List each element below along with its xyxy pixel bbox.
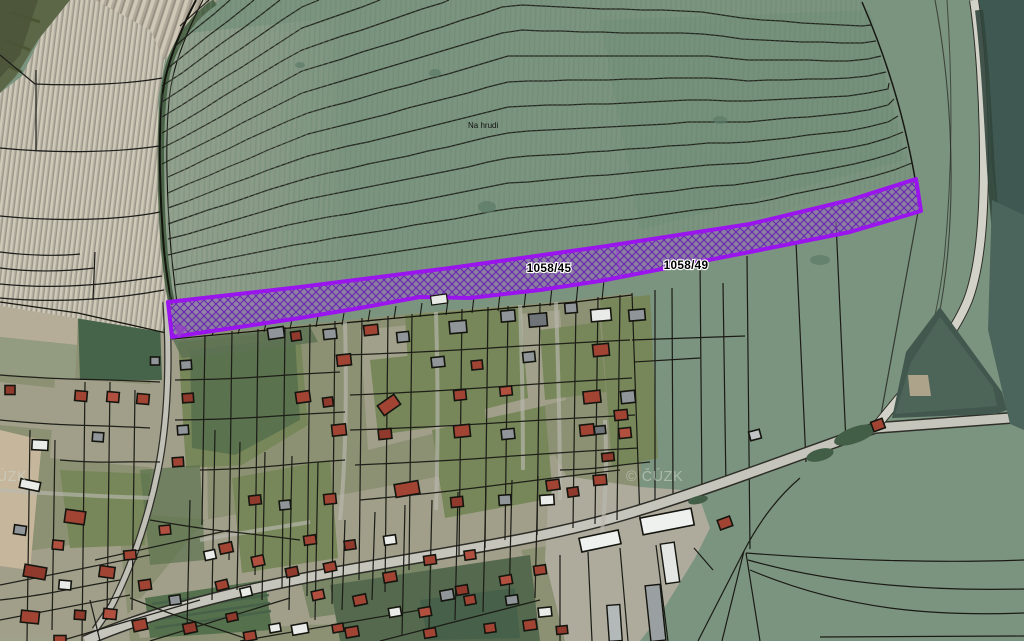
svg-text:© ČÚZK: © ČÚZK (0, 468, 27, 485)
svg-text:© ČÚZK: © ČÚZK (626, 468, 683, 485)
svg-text:Na hrudi: Na hrudi (468, 121, 498, 130)
svg-text:1058/45: 1058/45 (527, 261, 572, 275)
svg-text:1058/49: 1058/49 (664, 258, 709, 272)
